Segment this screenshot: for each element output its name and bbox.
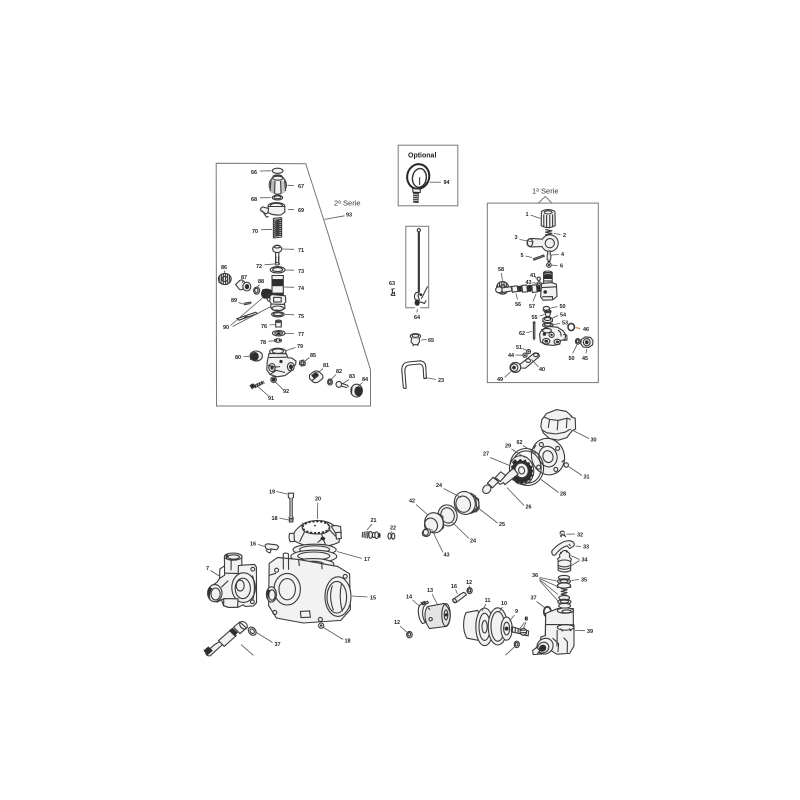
svg-text:68: 68 [251, 197, 257, 203]
svg-text:17: 17 [364, 557, 370, 563]
svg-text:11: 11 [485, 598, 491, 604]
svg-text:41: 41 [530, 273, 536, 279]
svg-text:81: 81 [323, 363, 329, 369]
svg-text:31: 31 [583, 475, 589, 481]
svg-text:88: 88 [258, 279, 264, 285]
svg-text:54: 54 [560, 313, 567, 319]
svg-text:1: 1 [525, 212, 528, 218]
svg-text:3: 3 [514, 235, 517, 241]
svg-text:2a Serie: 2a Serie [334, 199, 361, 208]
svg-text:74: 74 [298, 286, 305, 292]
svg-text:79: 79 [297, 344, 303, 350]
svg-text:93: 93 [346, 213, 352, 219]
svg-text:18: 18 [271, 516, 277, 522]
svg-text:62: 62 [516, 440, 522, 446]
svg-text:18: 18 [344, 639, 350, 645]
svg-text:50: 50 [559, 304, 565, 310]
svg-text:72: 72 [256, 264, 262, 270]
svg-text:58: 58 [498, 267, 504, 273]
svg-text:Optional: Optional [408, 153, 436, 160]
svg-text:14: 14 [406, 595, 413, 601]
svg-text:78: 78 [260, 340, 266, 346]
svg-text:9: 9 [515, 609, 518, 615]
svg-text:27: 27 [483, 452, 489, 458]
svg-text:42: 42 [409, 499, 415, 505]
svg-text:10: 10 [501, 601, 507, 607]
svg-text:89: 89 [231, 298, 237, 304]
svg-text:84: 84 [362, 377, 369, 383]
svg-text:2: 2 [563, 233, 566, 239]
svg-text:73: 73 [298, 269, 304, 275]
svg-text:50: 50 [568, 356, 574, 362]
svg-text:12: 12 [466, 580, 472, 586]
svg-text:77: 77 [298, 332, 304, 338]
svg-text:32: 32 [577, 533, 583, 539]
svg-text:83: 83 [349, 374, 355, 380]
svg-text:66: 66 [251, 170, 257, 176]
svg-text:71: 71 [298, 248, 304, 254]
svg-text:19: 19 [269, 490, 275, 496]
svg-text:82: 82 [336, 369, 342, 375]
svg-text:6: 6 [524, 617, 527, 623]
svg-text:12: 12 [394, 620, 400, 626]
svg-text:86: 86 [221, 265, 227, 271]
svg-text:37: 37 [274, 642, 280, 648]
svg-text:7: 7 [206, 566, 209, 572]
svg-text:16: 16 [451, 584, 457, 590]
svg-text:70: 70 [252, 229, 258, 235]
svg-text:20: 20 [315, 497, 321, 503]
svg-text:13: 13 [427, 588, 433, 594]
svg-text:51: 51 [516, 345, 522, 351]
svg-text:90: 90 [223, 325, 229, 331]
svg-text:65: 65 [428, 338, 434, 344]
svg-text:75: 75 [298, 314, 304, 320]
svg-text:55: 55 [531, 315, 537, 321]
svg-text:57: 57 [529, 304, 535, 310]
svg-text:24: 24 [436, 483, 443, 489]
svg-text:69: 69 [298, 208, 304, 214]
svg-text:53: 53 [562, 321, 568, 327]
svg-text:39: 39 [587, 629, 593, 635]
svg-text:5: 5 [520, 253, 523, 259]
svg-text:45: 45 [582, 356, 588, 362]
svg-text:37: 37 [530, 596, 536, 602]
svg-text:33: 33 [583, 545, 589, 551]
svg-text:44: 44 [508, 353, 515, 359]
svg-text:23: 23 [438, 378, 444, 384]
svg-text:46: 46 [583, 327, 589, 333]
svg-text:6: 6 [560, 264, 563, 270]
svg-text:49: 49 [497, 377, 503, 383]
svg-text:35: 35 [581, 578, 587, 584]
svg-text:62: 62 [519, 331, 525, 337]
svg-text:94: 94 [443, 180, 450, 186]
svg-text:67: 67 [298, 184, 304, 190]
svg-text:26: 26 [525, 505, 531, 511]
svg-text:87: 87 [241, 275, 247, 281]
svg-text:76: 76 [261, 324, 267, 330]
svg-text:16: 16 [250, 542, 256, 548]
svg-text:29: 29 [505, 444, 511, 450]
svg-text:64: 64 [414, 315, 421, 321]
svg-text:24: 24 [470, 539, 477, 545]
svg-text:85: 85 [310, 353, 316, 359]
svg-text:56: 56 [515, 302, 521, 308]
svg-text:22: 22 [390, 526, 396, 532]
svg-text:1a Serie: 1a Serie [532, 187, 559, 196]
svg-text:28: 28 [560, 492, 566, 498]
svg-text:25: 25 [499, 522, 505, 528]
svg-text:36: 36 [532, 573, 538, 579]
svg-text:21: 21 [370, 518, 376, 524]
svg-text:15: 15 [370, 596, 376, 602]
svg-text:63: 63 [389, 281, 395, 287]
svg-text:91: 91 [268, 396, 274, 402]
svg-text:80: 80 [235, 355, 241, 361]
svg-text:34: 34 [581, 558, 588, 564]
svg-text:40: 40 [539, 367, 545, 373]
svg-text:43: 43 [443, 553, 449, 559]
svg-text:30: 30 [590, 438, 596, 444]
svg-text:92: 92 [283, 389, 289, 395]
